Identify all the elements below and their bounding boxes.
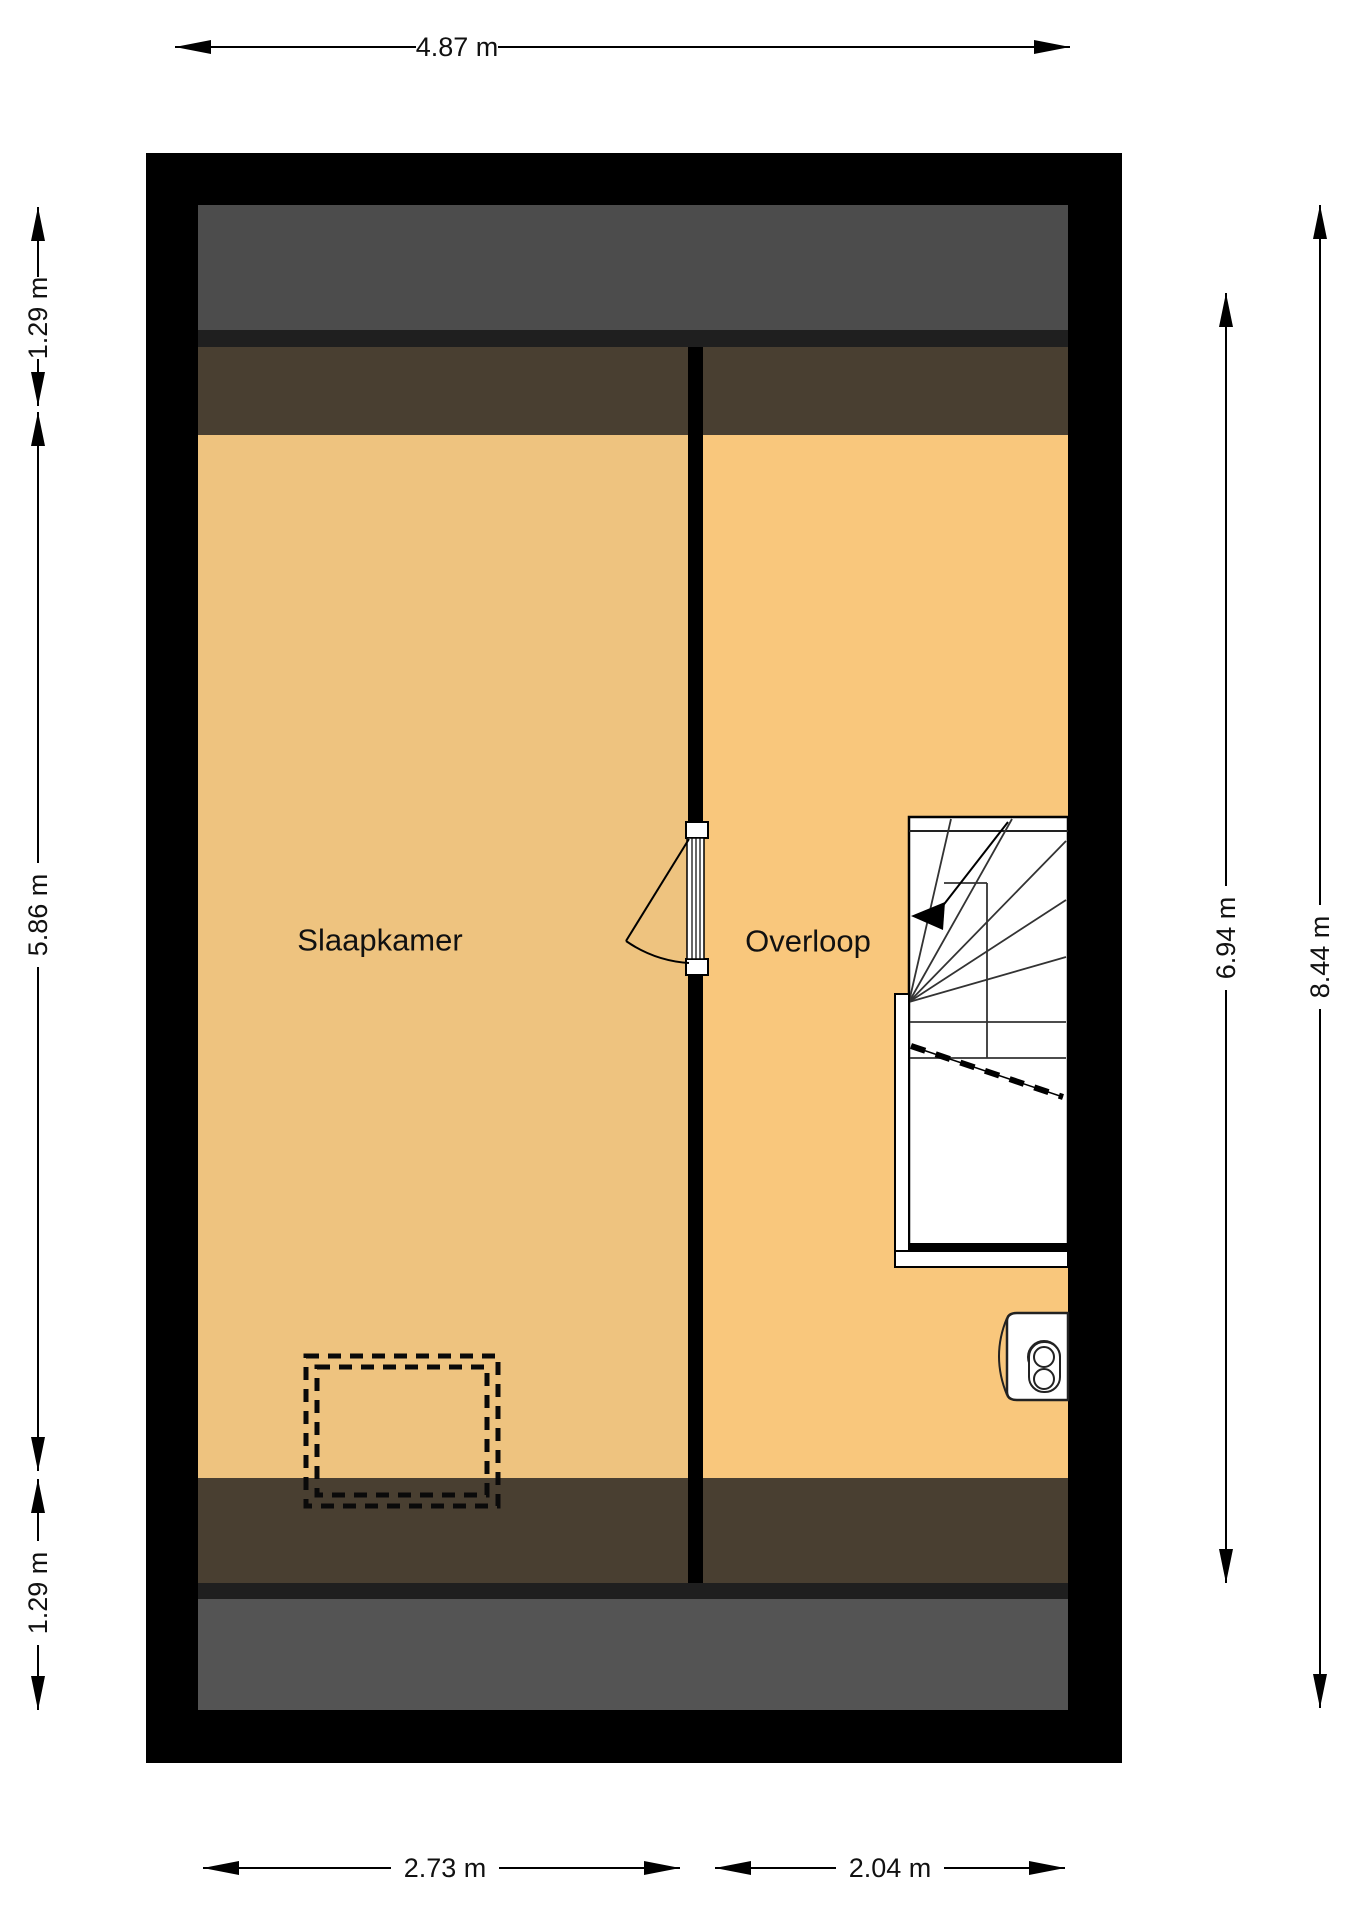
divider-wall-lower <box>688 975 703 1583</box>
dim-label-left-bottom: 1.29 m <box>23 1552 53 1635</box>
roof-band-brown-bottom <box>198 1478 1068 1583</box>
arrowhead-down-icon <box>31 372 45 406</box>
dim-label-left-top: 1.29 m <box>23 277 53 360</box>
arrowhead-right-icon <box>644 1861 680 1875</box>
arrowhead-left-icon <box>203 1861 239 1875</box>
dim-label-left-middle: 5.86 m <box>23 874 53 957</box>
arrowhead-down-icon <box>1313 1674 1327 1708</box>
arrowhead-up-icon <box>31 207 45 241</box>
room-label-overloop: Overloop <box>745 924 871 959</box>
roof-line-top <box>198 330 1068 347</box>
arrowhead-up-icon <box>31 1479 45 1513</box>
arrowhead-down-icon <box>31 1437 45 1471</box>
arrowhead-right-icon <box>1029 1861 1065 1875</box>
staircase <box>895 817 1068 1267</box>
boiler-dial-top <box>1034 1347 1054 1367</box>
boiler-dial-bottom <box>1034 1369 1054 1389</box>
dim-label-right-total: 8.44 m <box>1305 916 1335 999</box>
roof-band-gray-top <box>198 205 1068 330</box>
dim-label-top-width: 4.87 m <box>416 32 499 62</box>
arrowhead-up-icon <box>1219 293 1233 327</box>
stair-balustrade-bottom <box>895 1251 1068 1267</box>
dim-label-bottom-left: 2.73 m <box>404 1853 487 1883</box>
floor-plan-svg: Slaapkamer Overloop 4.87 m 1.29 m 5.86 m… <box>0 0 1358 1920</box>
door-jamb-top <box>686 822 708 838</box>
dim-label-bottom-right: 2.04 m <box>849 1853 932 1883</box>
stair-balustrade-left <box>895 994 909 1267</box>
roof-line-bottom <box>198 1583 1068 1599</box>
arrowhead-up-icon <box>31 412 45 446</box>
roof-band-gray-bottom <box>198 1599 1068 1710</box>
stairwell <box>909 817 1068 1250</box>
arrowhead-up-icon <box>1313 205 1327 239</box>
arrowhead-left-icon <box>715 1861 751 1875</box>
floor-plan-page: Slaapkamer Overloop 4.87 m 1.29 m 5.86 m… <box>0 0 1358 1920</box>
room-label-slaapkamer: Slaapkamer <box>297 923 462 958</box>
dim-label-right-inner: 6.94 m <box>1211 897 1241 980</box>
arrowhead-left-icon <box>175 40 211 54</box>
arrowhead-right-icon <box>1034 40 1070 54</box>
stair-bottom-edge <box>909 1243 1068 1251</box>
boiler-icon <box>999 1313 1068 1400</box>
roof-band-brown-top <box>198 347 1068 435</box>
arrowhead-down-icon <box>31 1676 45 1710</box>
door-jamb-bottom <box>686 959 708 975</box>
arrowhead-down-icon <box>1219 1549 1233 1583</box>
divider-wall-upper <box>688 347 703 822</box>
